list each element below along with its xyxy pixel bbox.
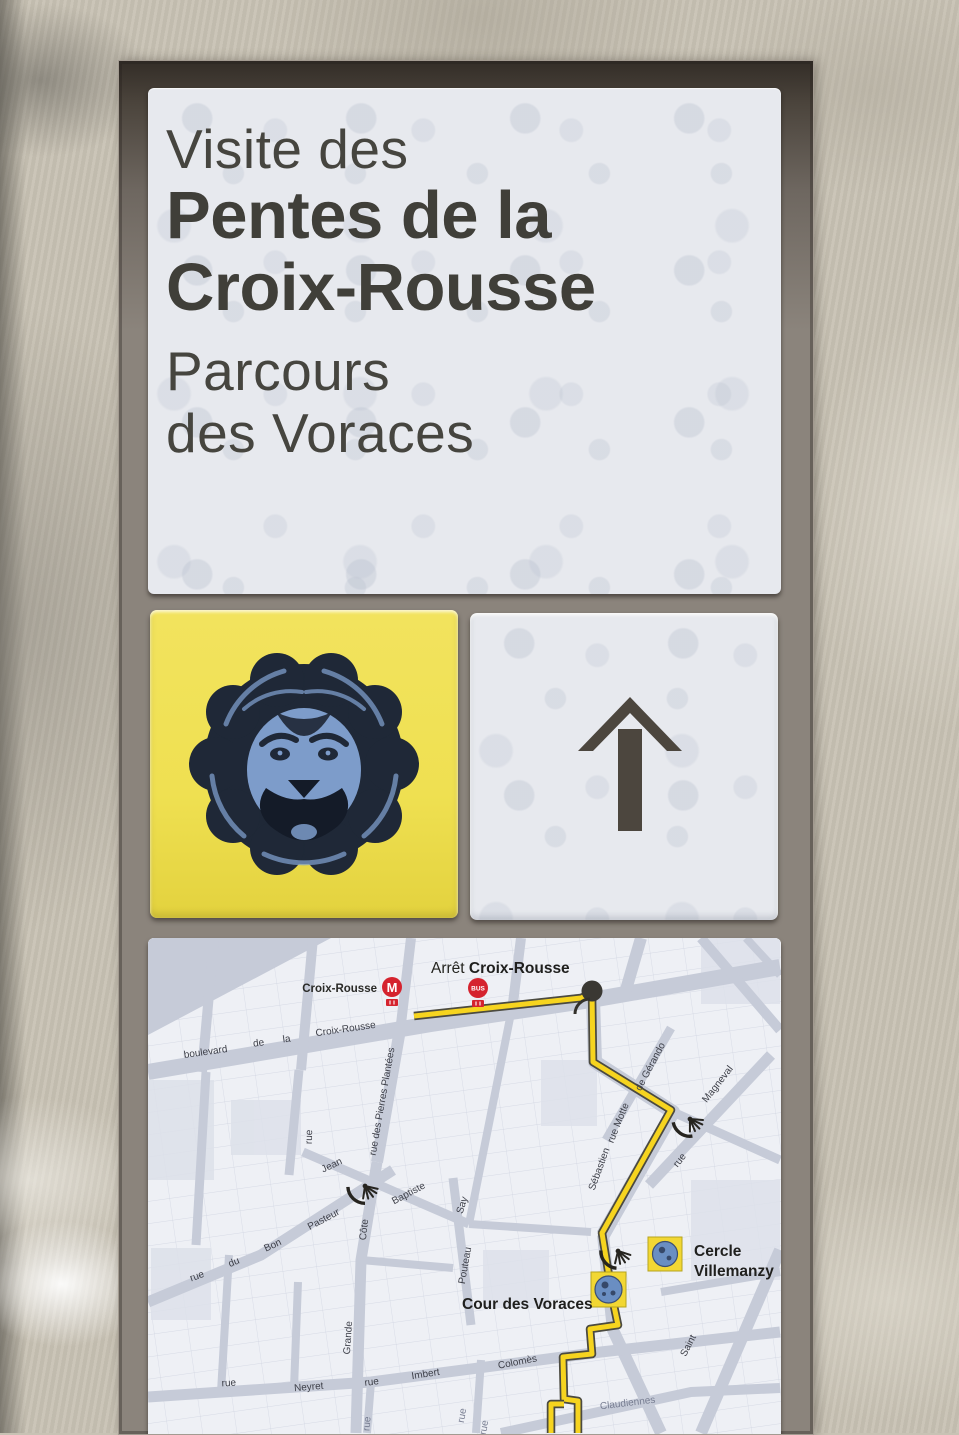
street-label: Grande (342, 1320, 355, 1354)
street-label: Côte (358, 1218, 371, 1241)
poi-label-villemanzy: Villemanzy (694, 1263, 774, 1280)
poi-cercle-villemanzy (648, 1237, 682, 1271)
route-map: M BUS (148, 938, 781, 1434)
route-map-panel: M BUS (148, 938, 781, 1434)
sign-frame: Visite des Pentes de la Croix-Rousse Par… (118, 60, 814, 1435)
arret-prefix: Arrêt (431, 960, 469, 977)
station-label: Croix-Rousse (302, 983, 377, 995)
direction-tile (470, 613, 778, 920)
poi-cour-des-voraces (591, 1272, 626, 1307)
street-label: rue (478, 1419, 491, 1434)
bus-letters: BUS (471, 986, 485, 993)
stone-wall-background: Visite des Pentes de la Croix-Rousse Par… (0, 0, 959, 1433)
street-label: rue (361, 1416, 373, 1432)
up-arrow-icon (470, 613, 778, 920)
poi-label-cercle: Cercle (694, 1243, 742, 1260)
metro-letter: M (387, 980, 398, 995)
street-label: de (252, 1037, 265, 1050)
lion-tile (150, 610, 458, 918)
subtitle-2: des Voraces (166, 402, 781, 464)
title-main-2: Croix-Rousse (166, 252, 781, 324)
poi-label-voraces: Cour des Voraces (462, 1296, 593, 1313)
title-prefix: Visite des (166, 118, 781, 180)
lion-head-icon (179, 639, 429, 889)
street-label: rue (364, 1376, 380, 1389)
arret-name: Croix-Rousse (469, 960, 570, 977)
title-main-1: Pentes de la (166, 180, 781, 252)
street-label: rue (304, 1129, 316, 1144)
arret-label: Arrêt Croix-Rousse (431, 960, 570, 977)
subtitle-1: Parcours (166, 340, 781, 402)
street-label: rue (221, 1378, 236, 1390)
title-panel: Visite des Pentes de la Croix-Rousse Par… (148, 88, 781, 594)
